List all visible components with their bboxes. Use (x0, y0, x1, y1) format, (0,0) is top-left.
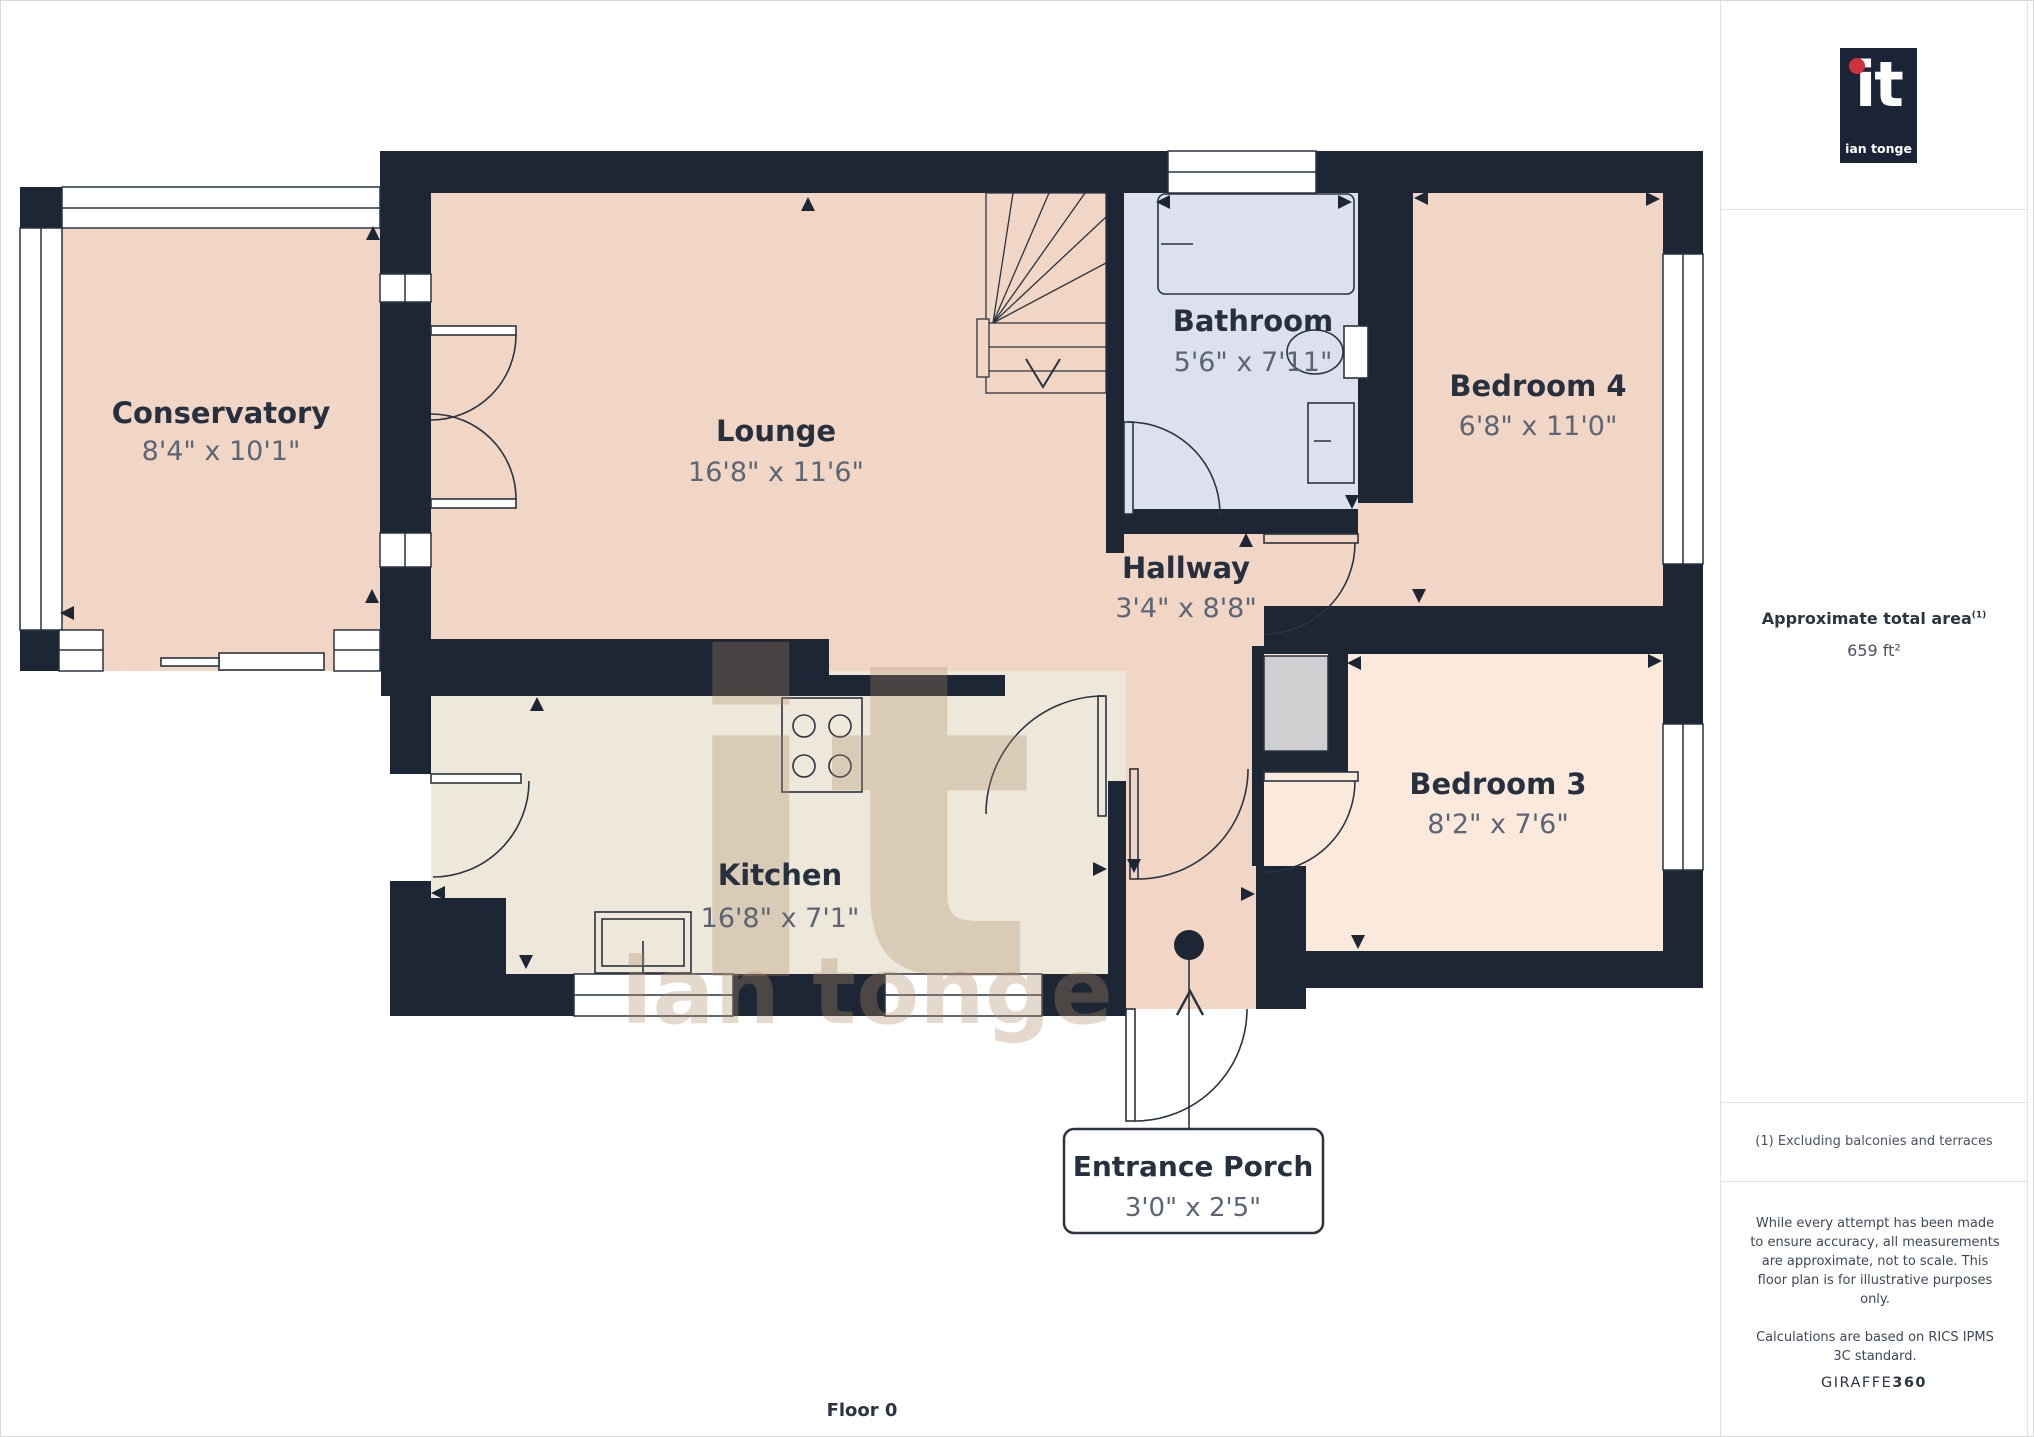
total-area-value: 659 ft² (1721, 641, 2027, 660)
room-dims-lounge: 16'8" x 11'6" (688, 457, 864, 488)
wall (390, 898, 506, 1016)
floorplan-page: it ian tonge Conservatory 8'4" x 10'1" L… (0, 0, 2034, 1437)
disclaimer-paragraph-1: While every attempt has been made to ens… (1750, 1214, 2000, 1309)
room-name-porch: Entrance Porch (1073, 1150, 1314, 1183)
room-name-bathroom: Bathroom (1173, 304, 1334, 338)
total-area-superscript: (1) (1972, 611, 1987, 621)
total-area-title: Approximate total area(1) (1721, 609, 2027, 628)
wall (1106, 151, 1124, 553)
door-leaf (431, 774, 521, 783)
door-arc (1135, 1009, 1247, 1121)
provider-suffix: 360 (1892, 1375, 1927, 1391)
wall (20, 630, 62, 671)
wall (1256, 951, 1306, 1009)
agency-logo-dot-icon (1849, 58, 1865, 74)
sidebar-divider (1721, 1102, 2027, 1103)
room-name-bedroom4: Bedroom 4 (1449, 369, 1626, 403)
door-leaf (431, 499, 516, 508)
room-name-lounge: Lounge (716, 414, 836, 448)
watermark-name: ian tonge (621, 938, 1113, 1045)
disclaimer-text: While every attempt has been made to ens… (1750, 1214, 2000, 1366)
outside-gap (381, 671, 390, 988)
door-leaf (1124, 422, 1133, 514)
door-leaf (431, 326, 516, 335)
agency-logo: it ian tonge (1840, 48, 1917, 163)
door-leaf (1264, 534, 1358, 543)
wall (20, 187, 62, 228)
floor-label: Floor 0 (827, 1400, 898, 1421)
room-dims-kitchen: 16'8" x 7'1" (701, 903, 860, 934)
cupboard (1264, 656, 1328, 751)
wall (1252, 754, 1264, 866)
wall (1124, 509, 1358, 534)
sidebar-divider (1721, 1181, 2027, 1182)
room-dims-porch: 3'0" x 2'5" (1125, 1193, 1261, 1223)
room-name-kitchen: Kitchen (718, 858, 842, 892)
wall (1304, 951, 1703, 988)
radiator (161, 658, 219, 666)
porch-marker (1174, 930, 1204, 960)
provider-credit: GIRAFFE360 (1721, 1375, 2027, 1391)
room-dims-hallway: 3'4" x 8'8" (1115, 593, 1257, 624)
agency-logo-name: ian tonge (1840, 141, 1917, 156)
provider-name: GIRAFFE (1821, 1375, 1892, 1391)
wall (380, 151, 431, 671)
room-dims-bathroom: 5'6" x 7'11" (1174, 347, 1333, 378)
room-dims-bedroom3: 8'2" x 7'6" (1427, 809, 1569, 840)
room-dims-conservatory: 8'4" x 10'1" (142, 436, 301, 467)
sidebar-divider (1721, 209, 2027, 210)
wall (381, 151, 1703, 193)
door-leaf (1126, 1009, 1135, 1121)
disclaimer-paragraph-2: Calculations are based on RICS IPMS 3C s… (1750, 1328, 2000, 1366)
doorway-opening (390, 774, 431, 881)
room-dims-bedroom4: 6'8" x 11'0" (1459, 411, 1618, 442)
info-sidebar: it ian tonge Approximate total area(1) 6… (1720, 1, 2028, 1437)
door-leaf (1098, 696, 1106, 816)
radiator (219, 653, 324, 670)
room-name-conservatory: Conservatory (112, 396, 331, 430)
total-area-title-text: Approximate total area (1762, 609, 1972, 628)
room-name-hallway: Hallway (1122, 551, 1250, 585)
door-leaf (1264, 772, 1358, 781)
toilet-cistern (1344, 326, 1368, 378)
total-area-block: Approximate total area(1) 659 ft² (1721, 609, 2027, 660)
area-footnote: (1) Excluding balconies and terraces (1721, 1134, 2027, 1149)
room-name-bedroom3: Bedroom 3 (1409, 767, 1586, 801)
